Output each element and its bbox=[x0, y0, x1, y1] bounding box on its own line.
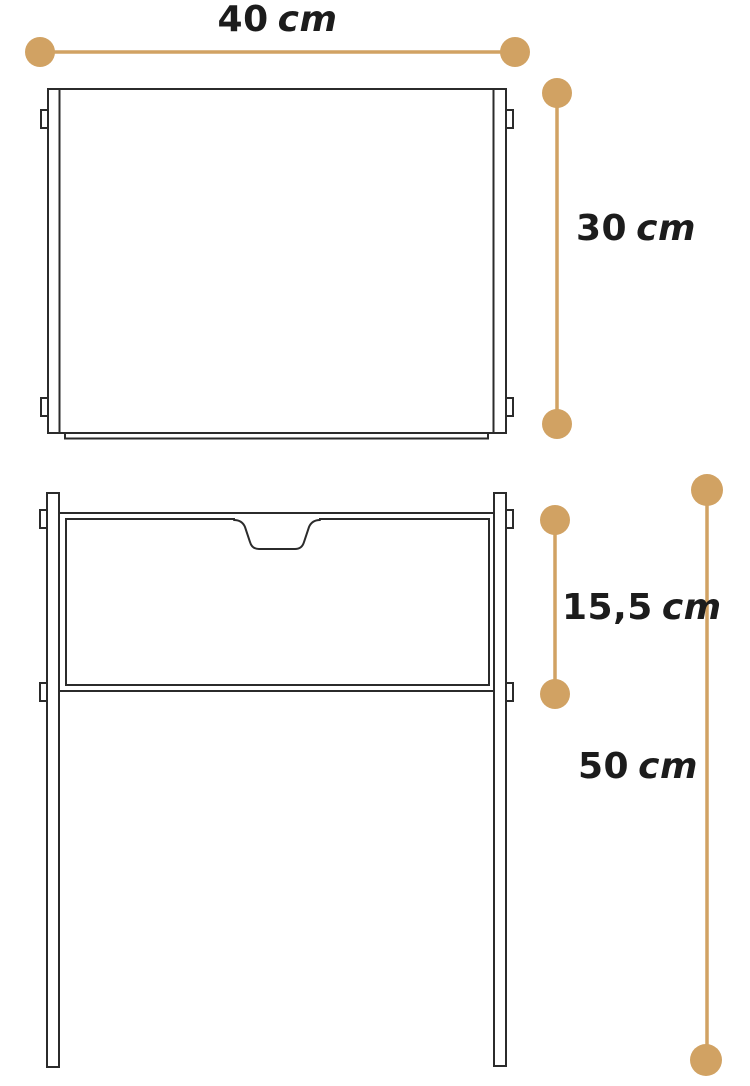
leg-tab-bottom-left bbox=[40, 683, 47, 701]
panel-height-unit: cm bbox=[636, 208, 696, 249]
furniture-dimension-diagram: 40cm 30cm 15,5cm 50cm bbox=[0, 0, 750, 1086]
leg-height-unit: cm bbox=[638, 746, 698, 787]
leg-tab-top-left bbox=[40, 510, 47, 528]
drawer-height-dimension-label: 15,5cm bbox=[562, 587, 722, 629]
dimension-endpoint-dot bbox=[540, 505, 570, 535]
dimension-endpoint-dot bbox=[542, 409, 572, 439]
dowel-tab-top-right bbox=[506, 110, 513, 128]
drawer-height-unit: cm bbox=[662, 587, 722, 628]
desk-leg-left bbox=[47, 493, 59, 1067]
dimension-endpoint-dot bbox=[25, 37, 55, 67]
panel-height-value: 30 bbox=[576, 208, 627, 249]
panel-height-dimension-label: 30cm bbox=[576, 208, 696, 250]
dowel-tab-top-left bbox=[41, 110, 48, 128]
dimension-endpoint-dot bbox=[542, 78, 572, 108]
dimension-endpoint-dot bbox=[500, 37, 530, 67]
width-unit: cm bbox=[278, 0, 338, 40]
dowel-tab-bottom-left bbox=[41, 398, 48, 416]
dimension-endpoint-dot bbox=[691, 474, 723, 506]
dowel-tab-bottom-right bbox=[506, 398, 513, 416]
drawer-height-value: 15,5 bbox=[562, 587, 653, 628]
width-dimension-label: 40cm bbox=[40, 0, 515, 41]
dimension-endpoint-dot bbox=[690, 1044, 722, 1076]
panel-bottom-edge-strip bbox=[65, 433, 488, 439]
dimension-endpoint-dot bbox=[540, 679, 570, 709]
panel-top-view bbox=[41, 89, 513, 439]
panel-outline bbox=[48, 89, 506, 433]
desk-leg-right bbox=[494, 493, 506, 1066]
leg-tab-top-right bbox=[506, 510, 513, 528]
width-value: 40 bbox=[218, 0, 269, 40]
dimension-width bbox=[25, 37, 530, 67]
dimension-panel-height bbox=[542, 78, 572, 439]
leg-height-value: 50 bbox=[578, 746, 629, 787]
diagram-line-art bbox=[0, 0, 750, 1086]
leg-tab-bottom-right bbox=[506, 683, 513, 701]
leg-height-dimension-label: 50cm bbox=[578, 746, 698, 788]
desk-front-view bbox=[40, 493, 513, 1067]
